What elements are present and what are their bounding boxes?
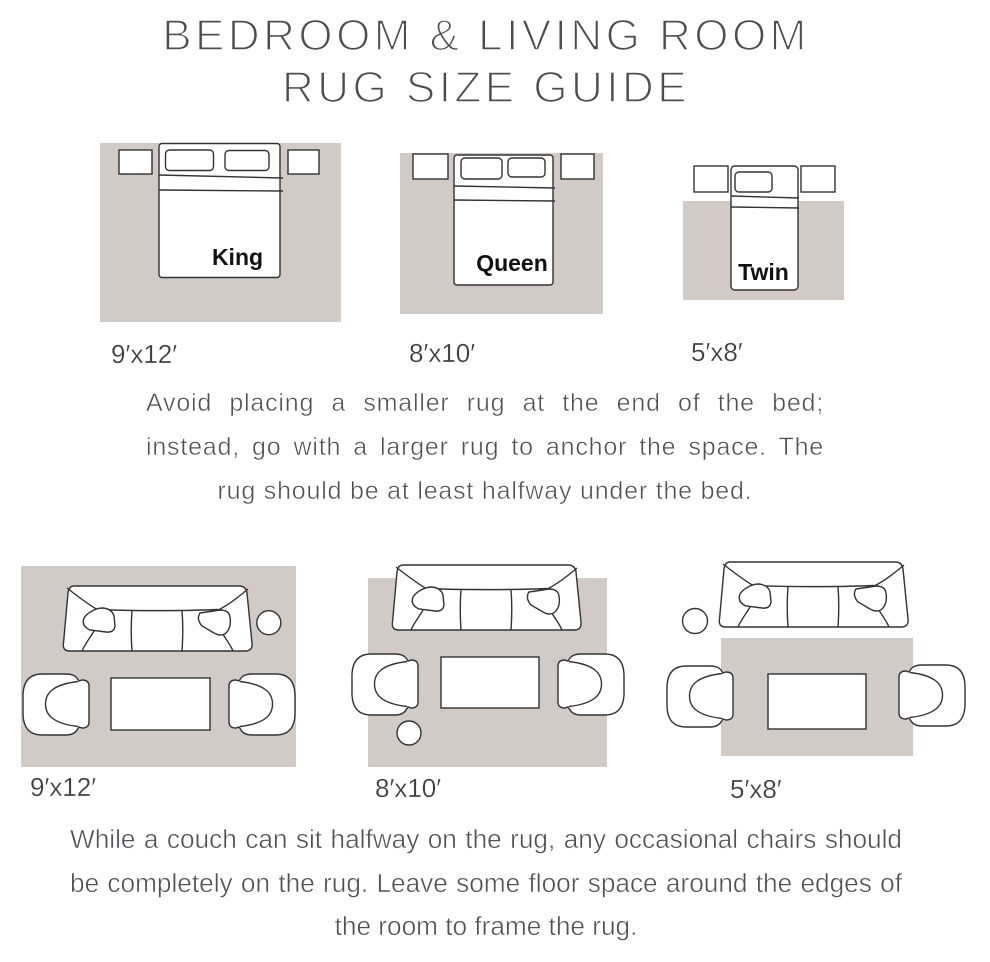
svg-text:King: King	[212, 244, 263, 270]
svg-text:Twin: Twin	[738, 259, 789, 285]
svg-text:5′x8′: 5′x8′	[691, 337, 743, 367]
svg-text:9′x12′: 9′x12′	[30, 772, 96, 802]
svg-text:8′x10′: 8′x10′	[409, 338, 475, 368]
svg-text:8′x10′: 8′x10′	[375, 773, 441, 803]
svg-text:Queen: Queen	[476, 250, 548, 276]
svg-text:9′x12′: 9′x12′	[111, 339, 177, 369]
svg-text:5′x8′: 5′x8′	[730, 774, 782, 804]
